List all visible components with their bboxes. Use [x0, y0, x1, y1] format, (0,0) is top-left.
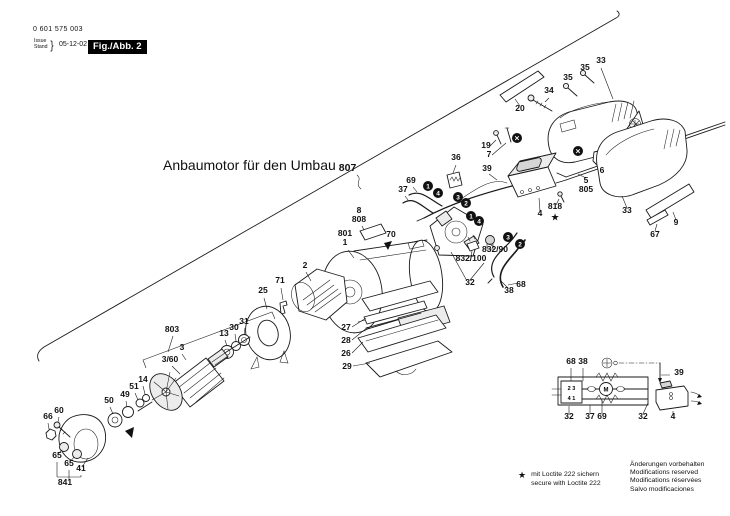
part-label: 26: [341, 348, 351, 358]
direction-arrow-icon: [125, 427, 134, 438]
part-label: 803: [165, 324, 179, 334]
connection-marker-text: 3: [506, 234, 510, 241]
part-label: 60: [54, 405, 64, 415]
part-label: 832/100: [456, 253, 487, 263]
part-label: 32: [465, 277, 475, 287]
part-label: 30: [229, 322, 239, 332]
part-label: 37: [398, 184, 408, 194]
star-icon: ★: [518, 471, 526, 488]
assembly-marker-icon-text: ✕: [575, 148, 581, 155]
screw-19: [490, 131, 501, 146]
schematic-label: 68: [566, 356, 576, 366]
part-label: 6: [600, 165, 605, 175]
connection-marker-text: 1: [469, 213, 473, 220]
part-label: 65: [52, 450, 62, 460]
part-label: 65: [64, 458, 74, 468]
schematic-connector-top: 2 3: [568, 386, 576, 392]
diagram-title-text: Anbaumotor für den Umbau: [163, 157, 336, 173]
brush-holder-36: [447, 165, 462, 188]
part-label: 3/60: [162, 354, 179, 364]
stand-label: Stand: [34, 45, 48, 51]
connection-marker-text: 3: [456, 194, 460, 201]
assembly-marker-icon-text: ✕: [514, 135, 520, 142]
notice-en: Modifications reserved: [630, 469, 704, 477]
clip-71: [280, 288, 287, 314]
notice-es: Salvo modificaciones: [630, 486, 704, 494]
part-label: 35: [563, 72, 573, 82]
notice-de: Änderungen vorbehalten: [630, 461, 704, 469]
footnote-line-en: secure with Loctite 222: [531, 480, 601, 489]
brace-glyph: }: [50, 38, 53, 52]
part-label: 38: [504, 285, 514, 295]
part-label: 33: [622, 205, 632, 215]
part-label: 33: [596, 55, 606, 65]
parts-diagram-page: M 2 3 4 1 203435353319739366937580563396…: [0, 0, 730, 516]
diagram-title-ref: 807: [339, 162, 357, 174]
footnote-line-de: mit Loctite 222 sichern: [531, 471, 601, 480]
part-label: 71: [275, 275, 285, 285]
label-sticker-9: [646, 184, 694, 220]
part-label: 31: [239, 316, 249, 326]
connection-marker-text: 1: [426, 183, 430, 190]
part-label: 20: [515, 103, 525, 113]
part-label: 841: [58, 477, 72, 487]
connection-marker-text: 4: [436, 190, 440, 197]
part-label: 35: [580, 62, 590, 72]
part-label: 14: [138, 374, 148, 384]
part-label: 66: [43, 411, 53, 421]
schematic-connector-bottom: 4 1: [568, 396, 576, 402]
plate-8-808: [360, 224, 386, 240]
issue-stand-label: Issue Stand: [34, 39, 48, 50]
schematic-label: 39: [674, 367, 684, 377]
schematic-label: 69: [597, 411, 607, 421]
part-label: 28: [341, 335, 351, 345]
schematic-label: 37: [585, 411, 595, 421]
part-label: 29: [342, 361, 352, 371]
part-label: 805: [579, 184, 593, 194]
schematic-label: 38: [578, 356, 588, 366]
connection-marker-text: 2: [464, 200, 468, 207]
screw-34: [528, 95, 552, 111]
part-label: 39: [482, 163, 492, 173]
part-label: 67: [650, 229, 660, 239]
exploded-view-diagram: M 2 3 4 1 203435353319739366937580563396…: [0, 0, 730, 516]
modification-notices: Änderungen vorbehalten Modifications res…: [630, 461, 704, 494]
part-label: 68: [516, 279, 526, 289]
part-label: 34: [544, 85, 554, 95]
screw-35-right: [580, 70, 594, 83]
connection-marker-text: 4: [477, 218, 481, 225]
part-label: 13: [219, 328, 229, 338]
loctite-footnote: ★ mit Loctite 222 sichern secure with Lo…: [518, 471, 601, 488]
part-label: 3: [180, 342, 185, 352]
part-label: 27: [341, 322, 351, 332]
part-label: ★: [551, 212, 560, 222]
schematic-motor-symbol: M: [604, 388, 609, 394]
wire-37: [403, 196, 433, 213]
part-label: 51: [129, 381, 139, 391]
part-number: 0 601 575 003: [33, 26, 83, 33]
part-label: 4: [538, 208, 543, 218]
part-label: 41: [76, 463, 86, 473]
part-label: 818: [548, 201, 562, 211]
part-label: 50: [104, 395, 114, 405]
part-label: 7: [487, 149, 492, 159]
figure-badge: Fig./Abb. 2: [88, 40, 147, 54]
schematic-label: 32: [564, 411, 574, 421]
notice-fr: Modifications réservées: [630, 477, 704, 485]
bearing-shield-25: [240, 298, 296, 369]
cover-plate-20: [500, 71, 544, 106]
diagram-title: Anbaumotor für den Umbau807: [163, 157, 356, 173]
part-label: 808: [352, 214, 366, 224]
part-label: 9: [674, 217, 679, 227]
part-label: 70: [386, 229, 396, 239]
part-label: 2: [303, 260, 308, 270]
part-label: 36: [451, 152, 461, 162]
part-label: 49: [120, 389, 130, 399]
screw-35-left: [563, 83, 577, 96]
schematic-label: 4: [671, 411, 676, 421]
connection-marker-text: 2: [518, 241, 522, 248]
part-label: 25: [258, 285, 268, 295]
part-label: 1: [343, 237, 348, 247]
issue-date: 05-12-02: [59, 41, 87, 48]
schematic-label: 32: [638, 411, 648, 421]
